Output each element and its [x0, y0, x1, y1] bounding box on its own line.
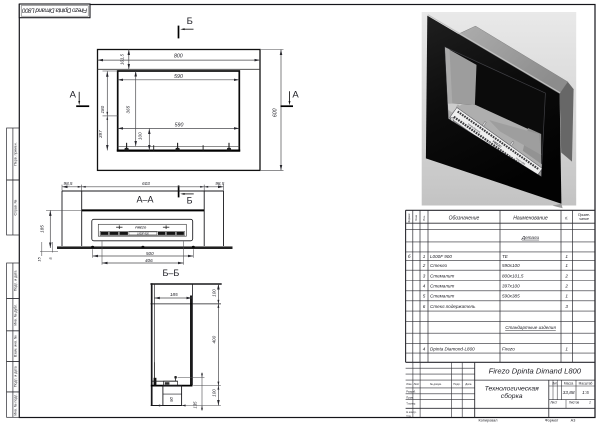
svg-text:Дата: Дата — [465, 382, 471, 386]
svg-text:185: 185 — [40, 225, 45, 233]
svg-text:800: 800 — [174, 54, 183, 60]
svg-text:б.: б. — [565, 215, 568, 220]
svg-text:Технологическая: Технологическая — [485, 385, 540, 392]
svg-text:590: 590 — [175, 123, 184, 129]
svg-text:L800F-900: L800F-900 — [137, 233, 149, 236]
svg-text:4: 4 — [423, 284, 426, 289]
svg-text:2: 2 — [564, 273, 568, 278]
svg-text:101,5: 101,5 — [119, 53, 124, 65]
svg-text:Взам. инв. №: Взам. инв. № — [13, 335, 17, 357]
svg-text:4: 4 — [423, 346, 426, 351]
svg-text:Лит.: Лит. — [552, 382, 558, 386]
svg-text:406: 406 — [145, 258, 153, 263]
svg-text:№ докум.: № докум. — [430, 383, 442, 386]
svg-text:FIREZO: FIREZO — [135, 226, 147, 230]
svg-text:Зона: Зона — [414, 215, 418, 221]
svg-text:Инв. № дубл.: Инв. № дубл. — [13, 304, 17, 326]
svg-text:185: 185 — [170, 292, 178, 297]
svg-text:135: 135 — [193, 401, 198, 409]
svg-text:365: 365 — [126, 105, 131, 113]
svg-text:603: 603 — [142, 181, 150, 186]
svg-text:Справ. №: Справ. № — [13, 199, 17, 215]
svg-text:397: 397 — [98, 130, 103, 138]
svg-text:Лист: Лист — [550, 401, 557, 405]
svg-text:Пров.: Пров. — [406, 395, 413, 399]
svg-text:600: 600 — [273, 108, 279, 117]
svg-text:б: б — [408, 254, 411, 259]
svg-text:100: 100 — [212, 389, 217, 397]
svg-text:Листов: Листов — [569, 401, 580, 405]
svg-text:Подп.: Подп. — [453, 382, 460, 386]
svg-text:98,5: 98,5 — [215, 181, 224, 186]
svg-text:Firezo Dpinta Dimand L800: Firezo Dpinta Dimand L800 — [22, 6, 88, 13]
svg-text:Б: Б — [187, 195, 193, 205]
svg-text:590: 590 — [174, 74, 183, 80]
svg-text:1: 1 — [565, 346, 568, 351]
svg-text:Лист: Лист — [414, 382, 421, 386]
svg-text:90: 90 — [169, 397, 174, 402]
svg-text:Поз.: Поз. — [422, 215, 426, 220]
svg-text:5: 5 — [423, 294, 426, 299]
svg-text:Приме-: Приме- — [578, 213, 591, 217]
svg-text:Инв. № подл.: Инв. № подл. — [13, 394, 17, 416]
svg-text:Формат: Формат — [545, 418, 559, 422]
svg-text:98,5: 98,5 — [64, 181, 73, 186]
svg-text:сборка: сборка — [501, 392, 523, 400]
svg-text:15: 15 — [37, 257, 42, 262]
svg-text:Масштаб: Масштаб — [579, 382, 593, 386]
svg-text:Firezo Dpinta Dimand L800: Firezo Dpinta Dimand L800 — [489, 367, 582, 376]
svg-text:Утв.: Утв. — [406, 414, 411, 418]
svg-text:Масса: Масса — [564, 382, 574, 386]
svg-text:Стекл.подержатель: Стекл.подержатель — [430, 304, 476, 309]
svg-text:Стандартные изделия: Стандартные изделия — [505, 325, 556, 330]
svg-text:А–А: А–А — [136, 194, 153, 204]
svg-text:А: А — [292, 89, 299, 100]
svg-text:L000F 900: L000F 900 — [430, 254, 452, 259]
svg-text:100: 100 — [212, 289, 217, 297]
svg-text:Разраб.: Разраб. — [406, 390, 416, 394]
svg-text:Подп. и дата: Подп. и дата — [13, 366, 17, 387]
svg-text:Dpinta Diamond-L800: Dpinta Diamond-L800 — [430, 346, 475, 351]
svg-text:А: А — [70, 90, 77, 101]
svg-text:Перв. примен.: Перв. примен. — [13, 142, 17, 165]
svg-text:590х385: 590х385 — [502, 294, 520, 299]
svg-text:ТЕ: ТЕ — [502, 254, 509, 259]
svg-text:Т.контр.: Т.контр. — [406, 401, 416, 405]
svg-text:чание: чание — [579, 217, 589, 221]
svg-text:2: 2 — [564, 284, 568, 289]
svg-text:А3: А3 — [571, 418, 576, 422]
svg-text:500: 500 — [146, 251, 154, 256]
svg-text:Firezo: Firezo — [502, 346, 515, 351]
svg-text:1: 1 — [423, 254, 426, 259]
svg-text:100: 100 — [138, 132, 143, 140]
svg-text:397х100: 397х100 — [502, 284, 520, 289]
svg-text:1: 1 — [565, 263, 568, 268]
svg-text:Обозначение: Обозначение — [449, 215, 480, 221]
svg-text:1:5: 1:5 — [582, 390, 589, 396]
svg-text:1: 1 — [565, 254, 568, 259]
svg-text:1: 1 — [589, 401, 591, 405]
svg-text:Н.контр.: Н.контр. — [406, 410, 417, 414]
svg-text:590х100: 590х100 — [502, 263, 520, 268]
svg-text:Стемалит: Стемалит — [430, 294, 454, 299]
svg-text:6: 6 — [423, 304, 426, 309]
svg-text:400: 400 — [212, 335, 217, 343]
svg-text:180: 180 — [100, 105, 105, 113]
svg-text:Б–Б: Б–Б — [162, 268, 179, 278]
svg-text:Б: Б — [187, 16, 193, 27]
svg-text:1: 1 — [565, 294, 568, 299]
svg-text:2: 2 — [422, 263, 426, 268]
svg-text:3: 3 — [565, 304, 568, 309]
svg-text:Детали: Детали — [521, 235, 540, 240]
svg-text:Изм.: Изм. — [406, 382, 412, 386]
svg-text:3: 3 — [423, 273, 426, 278]
svg-text:Стемалит: Стемалит — [430, 273, 454, 278]
svg-text:33,88: 33,88 — [563, 390, 575, 396]
svg-text:Копировал: Копировал — [478, 418, 497, 422]
svg-text:800х101,5: 800х101,5 — [502, 273, 524, 278]
svg-text:Формат: Формат — [407, 213, 411, 223]
svg-text:Подп. и дата: Подп. и дата — [13, 270, 17, 291]
svg-text:Наименование: Наименование — [513, 215, 548, 221]
svg-text:Стемалит: Стемалит — [430, 284, 454, 289]
svg-text:Стекло: Стекло — [430, 263, 447, 268]
